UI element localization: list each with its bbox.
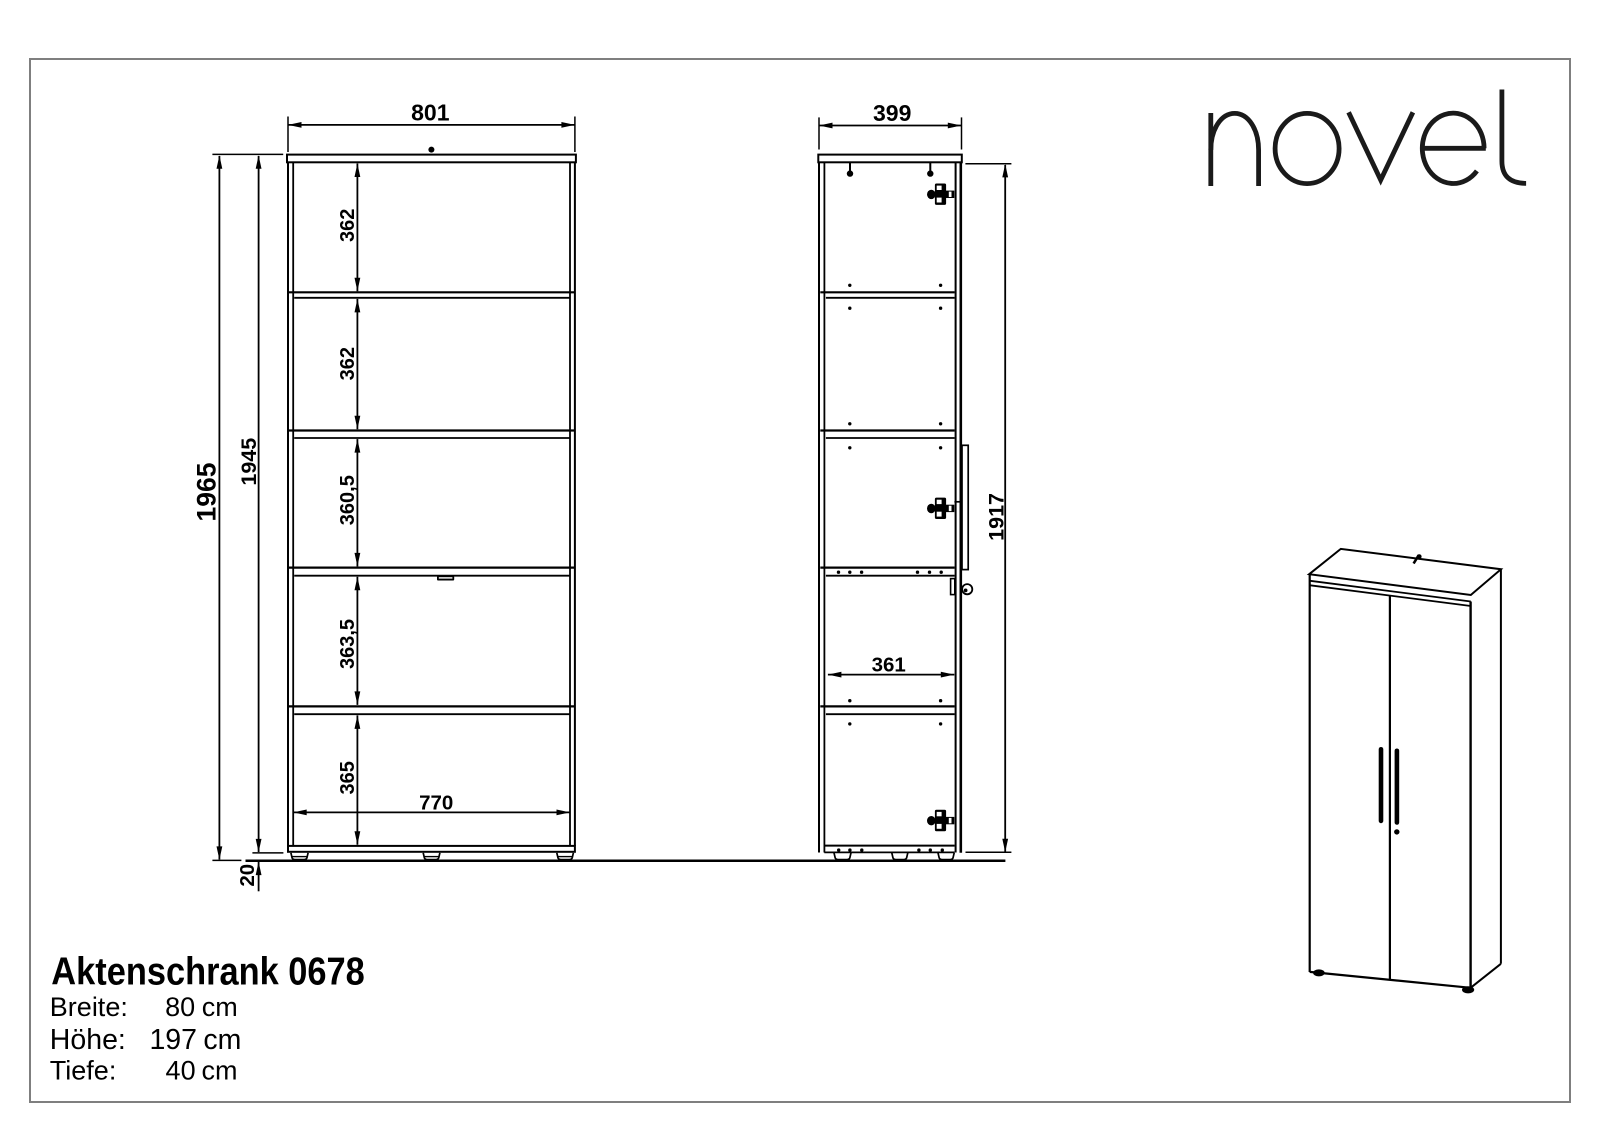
svg-text:cm: cm <box>202 1055 238 1085</box>
svg-text:801: 801 <box>411 100 450 126</box>
svg-text:40: 40 <box>166 1055 196 1085</box>
svg-text:Höhe:: Höhe: <box>50 1024 126 1056</box>
svg-text:365: 365 <box>337 761 359 794</box>
svg-text:1965: 1965 <box>192 463 222 522</box>
svg-text:361: 361 <box>872 654 906 677</box>
svg-text:399: 399 <box>873 100 911 126</box>
svg-text:20: 20 <box>236 864 259 887</box>
svg-text:362: 362 <box>337 209 359 242</box>
svg-text:80: 80 <box>165 992 195 1022</box>
svg-text:cm: cm <box>203 1024 241 1056</box>
svg-text:363,5: 363,5 <box>337 619 359 669</box>
svg-text:197: 197 <box>149 1024 197 1056</box>
svg-text:770: 770 <box>419 791 453 814</box>
svg-text:1945: 1945 <box>237 438 261 486</box>
svg-text:Breite:: Breite: <box>50 992 128 1022</box>
svg-text:cm: cm <box>202 992 238 1022</box>
svg-text:362: 362 <box>337 347 359 380</box>
svg-text:1917: 1917 <box>984 493 1008 541</box>
svg-text:360,5: 360,5 <box>337 475 359 525</box>
svg-text:Aktenschrank 0678: Aktenschrank 0678 <box>51 950 365 993</box>
svg-text:Tiefe:: Tiefe: <box>50 1055 117 1085</box>
